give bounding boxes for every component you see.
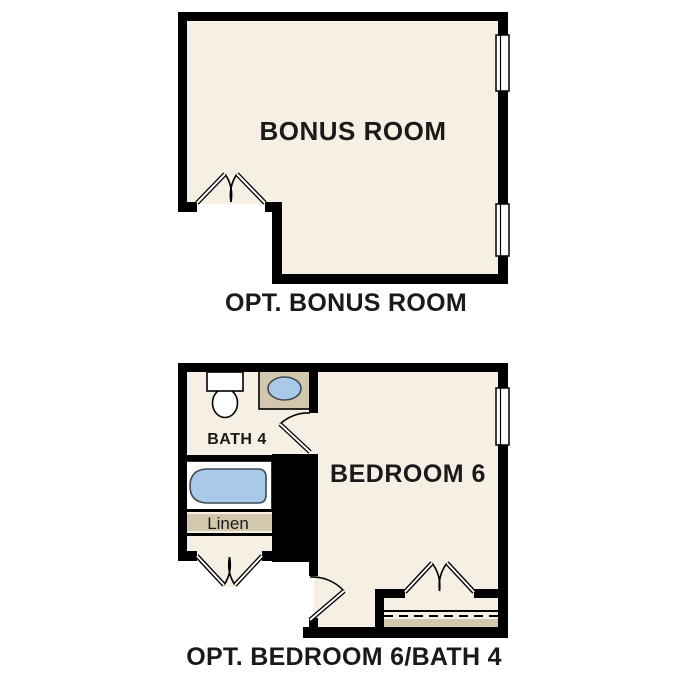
bonus-room-floor	[183, 16, 503, 279]
wall-segment	[309, 363, 318, 413]
wall-chase	[272, 454, 318, 562]
wall-segment	[178, 12, 187, 212]
wall-segment	[375, 589, 384, 638]
bathtub-icon	[183, 461, 272, 511]
wall-segment	[178, 202, 197, 212]
bonus-room-label: BONUS ROOM	[260, 116, 447, 146]
wall-segment	[183, 455, 272, 461]
wall-segment	[303, 627, 508, 638]
floor-plan-drawing: BONUS ROOM OPT. BONUS ROOM	[0, 0, 687, 687]
bedroom-label: BEDROOM 6	[330, 460, 486, 488]
wall-segment	[178, 12, 508, 21]
bedroom-plan-caption: OPT. BEDROOM 6/BATH 4	[186, 643, 502, 671]
linen-shelf-edge	[183, 509, 272, 512]
wall-segment	[474, 589, 508, 598]
bonus-plan-caption: OPT. BONUS ROOM	[225, 289, 467, 317]
closet-shelf-edge	[384, 610, 498, 612]
wall-segment	[178, 551, 197, 561]
bath-label: BATH 4	[207, 431, 267, 448]
linen-shelf-edge	[183, 533, 272, 536]
floor-plan-sheet: BONUS ROOM OPT. BONUS ROOM	[0, 0, 687, 687]
wall-segment	[178, 363, 187, 561]
bedroom6-bath4-plan: BATH 4 BEDROOM 6 Linen OPT. BEDROOM 6/BA…	[178, 363, 509, 671]
wall-segment	[272, 202, 282, 284]
window-icon	[496, 204, 509, 256]
wall-segment	[262, 551, 277, 561]
bonus-room-plan: BONUS ROOM OPT. BONUS ROOM	[178, 12, 509, 317]
wall-segment	[178, 363, 508, 372]
window-icon	[496, 35, 509, 91]
sink-vanity-icon	[259, 368, 310, 409]
wall-segment	[309, 562, 318, 576]
wall-segment	[272, 274, 508, 284]
window-icon	[496, 388, 509, 445]
linen-label: Linen	[207, 514, 249, 533]
